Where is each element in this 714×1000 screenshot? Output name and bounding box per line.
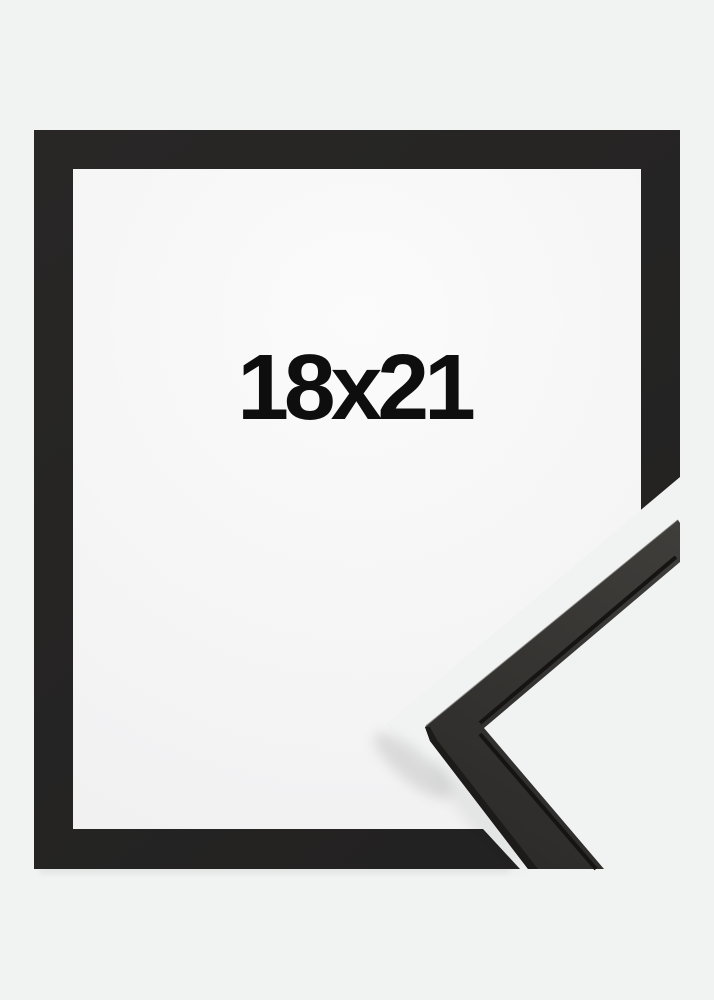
product-image: 18x21 bbox=[0, 0, 714, 1000]
size-label: 18x21 bbox=[154, 337, 554, 437]
frame-graphic bbox=[0, 0, 714, 1000]
